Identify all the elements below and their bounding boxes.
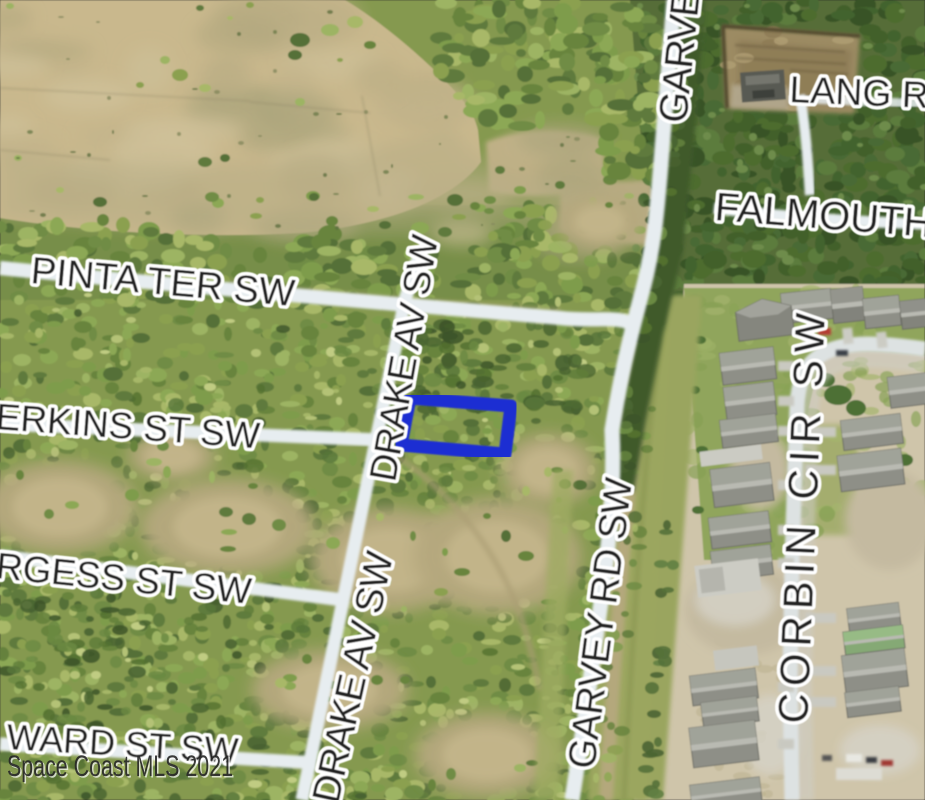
svg-text:Space Coast MLS 2021: Space Coast MLS 2021 — [7, 750, 233, 783]
svg-text:LANG R: LANG R — [789, 68, 925, 116]
